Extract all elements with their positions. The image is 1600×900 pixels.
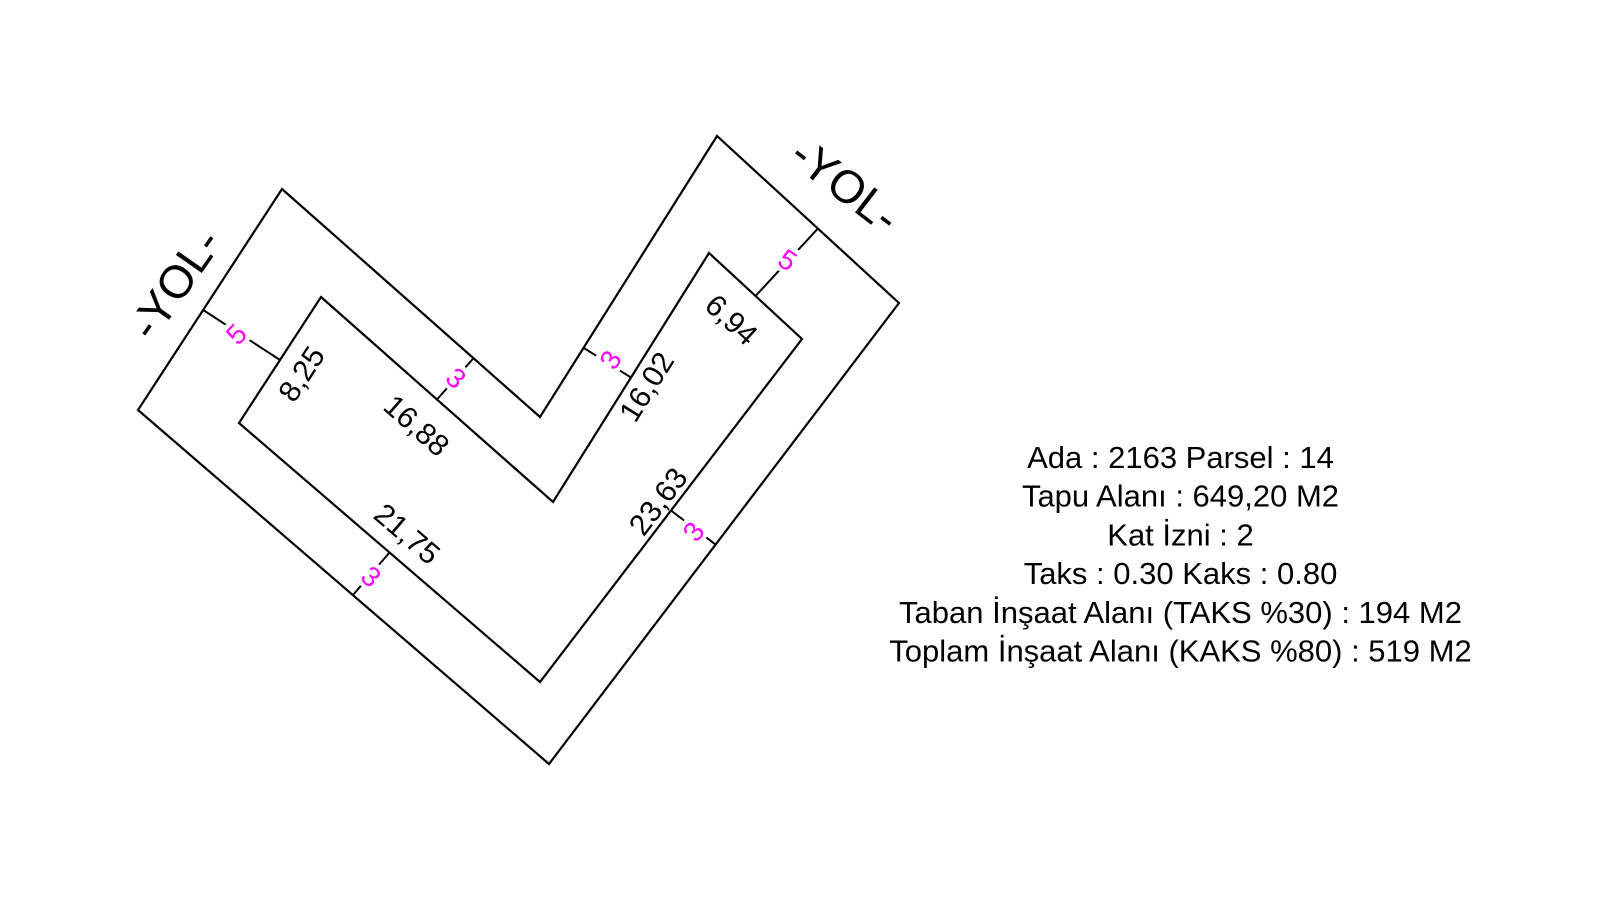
- svg-text:Ada : 2163 Parsel : 14: Ada : 2163 Parsel : 14: [1027, 440, 1334, 475]
- svg-text:16,88: 16,88: [377, 389, 455, 463]
- svg-text:21,75: 21,75: [367, 497, 445, 571]
- svg-text:8,25: 8,25: [272, 341, 332, 408]
- svg-text:Taks : 0.30 Kaks : 0.80: Taks : 0.30 Kaks : 0.80: [1024, 556, 1338, 591]
- svg-text:Toplam İnşaat Alanı (KAKS %80): Toplam İnşaat Alanı (KAKS %80) : 519 M2: [889, 634, 1471, 669]
- svg-text:-YOL-: -YOL-: [118, 219, 231, 349]
- svg-text:Kat İzni : 2: Kat İzni : 2: [1107, 517, 1253, 552]
- svg-text:6,94: 6,94: [698, 288, 763, 352]
- svg-text:Tapu Alanı : 649,20 M2: Tapu Alanı : 649,20 M2: [1022, 479, 1339, 514]
- svg-text:Taban İnşaat Alanı (TAKS %30): Taban İnşaat Alanı (TAKS %30) : 194 M2: [899, 595, 1462, 630]
- svg-text:-YOL-: -YOL-: [781, 127, 910, 243]
